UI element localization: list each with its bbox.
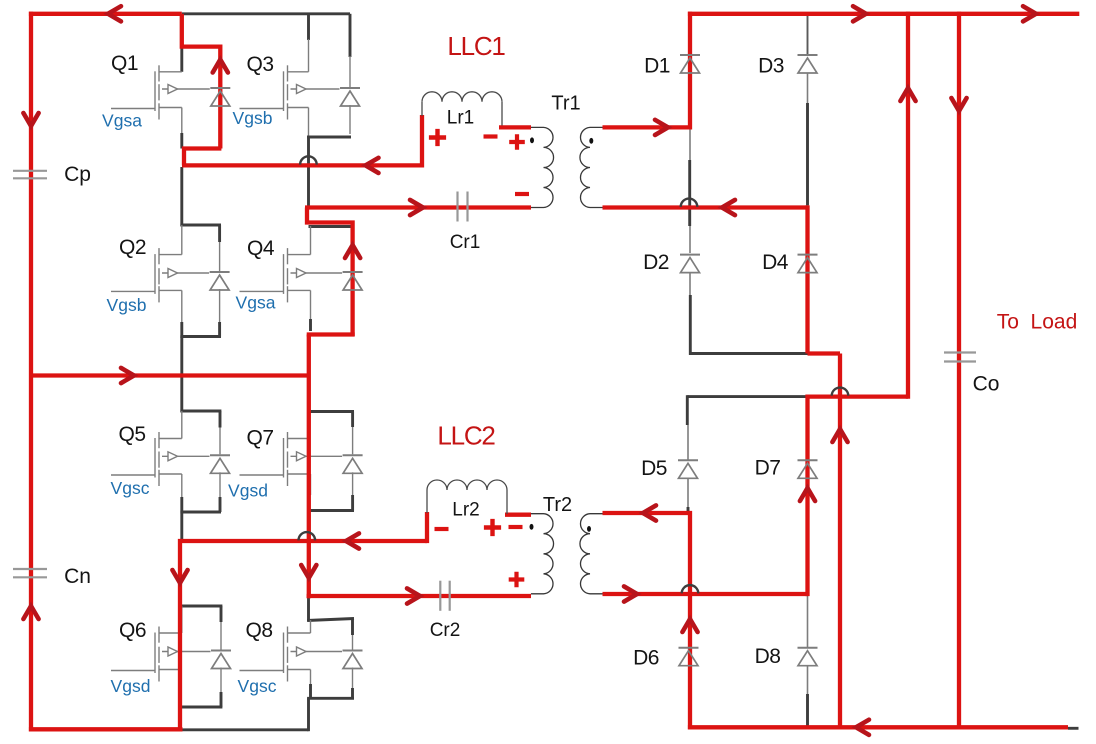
svg-text:Vgsc: Vgsc	[238, 676, 277, 696]
svg-text:Vgsd: Vgsd	[228, 481, 268, 501]
svg-text:D7: D7	[755, 457, 781, 480]
svg-text:Vgsb: Vgsb	[233, 108, 273, 128]
svg-text:Q1: Q1	[111, 52, 138, 75]
svg-text:Q6: Q6	[119, 619, 146, 642]
svg-text:D3: D3	[758, 55, 784, 78]
svg-text:Vgsb: Vgsb	[107, 295, 147, 315]
svg-text:Vgsd: Vgsd	[111, 676, 151, 696]
svg-text:LLC2: LLC2	[437, 421, 495, 451]
svg-text:D2: D2	[643, 251, 669, 274]
svg-text:Cr2: Cr2	[430, 620, 461, 641]
svg-text:D5: D5	[641, 457, 667, 480]
svg-text:Lr2: Lr2	[452, 500, 479, 521]
svg-text:Cn: Cn	[64, 565, 91, 588]
svg-text:Vgsc: Vgsc	[111, 478, 150, 498]
svg-text:Cp: Cp	[64, 163, 91, 186]
svg-text:Tr1: Tr1	[551, 93, 580, 115]
svg-text:Tr2: Tr2	[543, 494, 572, 516]
svg-text:Q7: Q7	[246, 427, 273, 450]
svg-text:Q2: Q2	[119, 236, 146, 259]
svg-text:Vgsa: Vgsa	[236, 293, 276, 313]
svg-text:To Load: To Load	[997, 311, 1078, 334]
svg-text:D8: D8	[755, 645, 781, 668]
svg-text:LLC1: LLC1	[447, 31, 505, 61]
svg-text:D1: D1	[644, 55, 670, 78]
svg-text:Cr1: Cr1	[450, 232, 481, 253]
svg-text:D6: D6	[633, 647, 659, 670]
svg-text:Q8: Q8	[245, 619, 272, 642]
svg-text:Q3: Q3	[246, 53, 273, 76]
svg-text:Q5: Q5	[118, 423, 145, 446]
svg-text:Lr1: Lr1	[447, 108, 474, 129]
svg-text:D4: D4	[762, 251, 789, 274]
svg-text:Vgsa: Vgsa	[102, 111, 142, 131]
svg-text:Q4: Q4	[247, 237, 275, 260]
svg-text:Co: Co	[973, 373, 1000, 396]
